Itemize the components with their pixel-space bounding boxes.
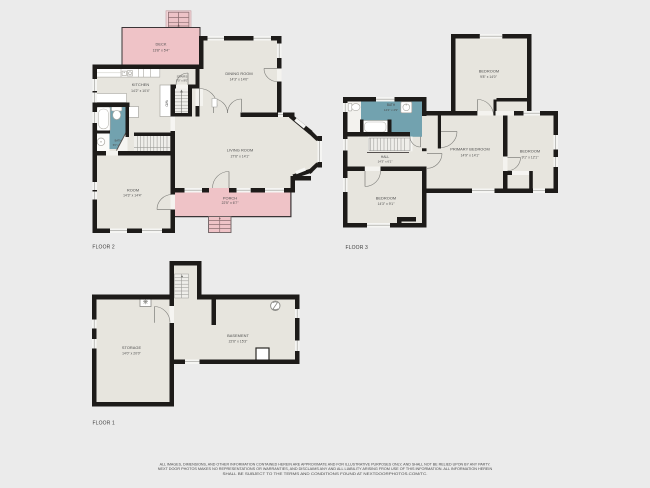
svg-text:W/D: W/D xyxy=(165,100,169,107)
svg-text:14'3" x 9'1": 14'3" x 9'1" xyxy=(378,202,396,206)
svg-text:14'0" x 20'0": 14'0" x 20'0" xyxy=(122,352,142,356)
svg-text:9'1" x 12'1": 9'1" x 12'1" xyxy=(522,156,540,160)
svg-text:NEXT DOOR PHOTOS MAKES NO REPR: NEXT DOOR PHOTOS MAKES NO REPRESENTATION… xyxy=(158,467,493,471)
svg-text:9'8" x 14'0": 9'8" x 14'0" xyxy=(480,75,498,79)
svg-text:22'5" x 6'7": 22'5" x 6'7" xyxy=(222,201,240,205)
svg-text:BEDROOM: BEDROOM xyxy=(376,196,396,201)
svg-text:PORCH: PORCH xyxy=(223,195,237,200)
svg-text:FLOOR 2: FLOOR 2 xyxy=(92,245,115,251)
svg-text:BATH: BATH xyxy=(387,103,396,107)
svg-text:KITCHEN: KITCHEN xyxy=(132,82,150,87)
svg-text:BEDROOM: BEDROOM xyxy=(520,149,540,154)
svg-text:ROOM: ROOM xyxy=(127,188,139,193)
svg-text:14'3" x 14'4": 14'3" x 14'4" xyxy=(123,194,143,198)
svg-text:14'9" x 14'1": 14'9" x 14'1" xyxy=(461,153,481,157)
svg-text:LIVING ROOM: LIVING ROOM xyxy=(227,148,254,153)
svg-text:FLOOR 1: FLOOR 1 xyxy=(93,421,116,427)
svg-text:DECK: DECK xyxy=(155,42,166,47)
svg-text:27'6" x 14'1": 27'6" x 14'1" xyxy=(231,155,251,159)
svg-text:22'6" x 15'3": 22'6" x 15'3" xyxy=(229,340,249,344)
svg-text:ALL IMAGES, DIMENSIONS, AND OT: ALL IMAGES, DIMENSIONS, AND OTHER INFORM… xyxy=(160,462,491,466)
svg-text:13'8" x 5'4": 13'8" x 5'4" xyxy=(153,49,171,53)
svg-text:SHALL BE SUBJECT TO THE TERMS: SHALL BE SUBJECT TO THE TERMS AND CONDIT… xyxy=(223,472,428,476)
svg-text:PRIMARY BEDROOM: PRIMARY BEDROOM xyxy=(450,147,490,152)
svg-text:BASEMENT: BASEMENT xyxy=(227,333,249,338)
svg-text:HALL: HALL xyxy=(381,155,390,159)
svg-text:14'2" x 10'4": 14'2" x 10'4" xyxy=(131,89,151,93)
svg-text:14'3" x 14'0": 14'3" x 14'0" xyxy=(230,78,250,82)
svg-text:STORAGE: STORAGE xyxy=(122,345,142,350)
svg-text:BEDROOM: BEDROOM xyxy=(479,68,499,73)
svg-text:14'2" x 4'9": 14'2" x 4'9" xyxy=(384,108,398,112)
svg-text:14'3" x 6'1": 14'3" x 6'1" xyxy=(378,160,393,164)
svg-text:DINING ROOM: DINING ROOM xyxy=(225,71,252,76)
svg-text:BATH: BATH xyxy=(115,139,122,143)
svg-text:FLOOR 3: FLOOR 3 xyxy=(346,245,369,251)
